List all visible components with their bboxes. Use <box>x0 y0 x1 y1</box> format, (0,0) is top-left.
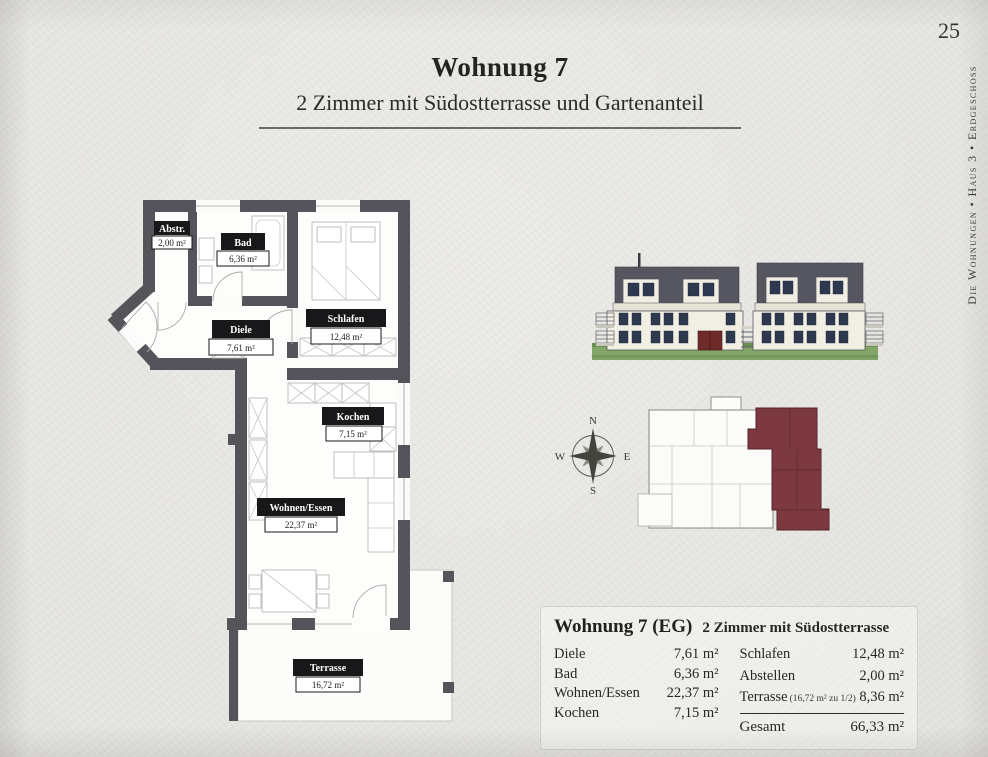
room-name: Bad <box>234 238 252 249</box>
neighbor-terrace <box>638 494 672 526</box>
room-label-kochen: Kochen 7,15 m² <box>322 407 384 441</box>
room-area: 7,15 m² <box>339 429 367 439</box>
building-overview <box>638 397 829 530</box>
row-label: Wohnen/Essen <box>554 684 640 704</box>
compass-rose: N S W E <box>555 415 631 497</box>
sidebar-caption: Die Wohnungen • Haus 3 • Erdgeschoss <box>963 49 981 321</box>
row-value: 7,61 m² <box>674 645 719 665</box>
room-area: 12,48 m² <box>330 332 363 342</box>
terrace-post <box>443 571 454 582</box>
row-label: Schlafen <box>740 645 793 667</box>
summary-row: Diele 7,61 m² <box>554 645 719 665</box>
summary-header: Wohnung 7 (EG) 2 Zimmer mit Südostterras… <box>554 616 904 638</box>
page-subtitle: 2 Zimmer mit Südostterrasse und Gartenan… <box>250 90 750 116</box>
row-label: Abstellen <box>740 667 798 689</box>
dormer <box>766 277 798 303</box>
row-label: Terrasse(16,72 m² zu 1/2) <box>740 688 856 710</box>
summary-row: Wohnen/Essen 22,37 m² <box>554 684 719 704</box>
dormer <box>683 279 719 305</box>
total-divider <box>740 713 905 714</box>
page-number: 25 <box>938 18 960 44</box>
summary-row: Schlafen 12,48 m² <box>740 645 905 667</box>
room-name: Diele <box>230 325 252 336</box>
terrace-side-wall <box>229 630 238 721</box>
dormer <box>623 279 659 305</box>
room-area: 2,00 m² <box>158 238 186 248</box>
room-name: Wohnen/Essen <box>270 503 333 514</box>
room-area: 22,37 m² <box>285 520 318 530</box>
row-label: Kochen <box>554 704 599 724</box>
row-value: 12,48 m² <box>852 645 904 665</box>
compass-main-star <box>569 428 617 484</box>
room-area: 16,72 m² <box>312 680 345 690</box>
balcony <box>866 313 883 346</box>
compass-s: S <box>590 485 596 497</box>
room-label-terrasse: Terrasse 16,72 m² <box>293 659 363 692</box>
site-plan: N S W E <box>555 392 851 544</box>
room-label-bad: Bad 6,36 m² <box>217 233 269 266</box>
room-label-schlafen: Schlafen 12,48 m² <box>306 309 386 344</box>
brochure-page: 25 Die Wohnungen • Haus 3 • Erdgeschoss … <box>0 0 988 757</box>
summary-left-column: Diele 7,61 m² Bad 6,36 m² Wohnen/Essen 2… <box>554 645 719 737</box>
summary-row: Bad 6,36 m² <box>554 665 719 685</box>
room-name: Schlafen <box>328 314 365 325</box>
row-label: Bad <box>554 665 577 685</box>
room-label-wohnen: Wohnen/Essen 22,37 m² <box>257 498 345 532</box>
row-value: 2,00 m² <box>859 667 904 687</box>
summary-subtitle: 2 Zimmer mit Südostterrasse <box>702 620 889 637</box>
room-area: 6,36 m² <box>229 254 257 264</box>
entrance-doors <box>698 331 722 350</box>
dormer <box>816 277 848 303</box>
row-value: 8,36 m² <box>859 688 904 708</box>
row-label: Diele <box>554 645 585 665</box>
area-summary-panel: Wohnung 7 (EG) 2 Zimmer mit Südostterras… <box>540 606 918 750</box>
sidebar-caption-text: Die Wohnungen • Haus 3 • Erdgeschoss <box>965 65 980 304</box>
room-name: Abstr. <box>159 224 186 235</box>
stairwell <box>711 397 741 411</box>
room-label-abstr: Abstr. 2,00 m² <box>152 221 192 249</box>
summary-row: Abstellen 2,00 m² <box>740 667 905 689</box>
summary-row: Kochen 7,15 m² <box>554 704 719 724</box>
summary-total-row: Gesamt 66,33 m² <box>740 718 905 738</box>
room-name: Terrasse <box>310 663 347 674</box>
room-name: Kochen <box>337 412 370 423</box>
floor-plan: Abstr. 2,00 m² Bad 6,36 m² Diele 7,61 m²… <box>100 190 460 738</box>
summary-row: Terrasse(16,72 m² zu 1/2) 8,36 m² <box>740 688 905 710</box>
compass-n: N <box>589 415 597 427</box>
row-value: 22,37 m² <box>667 684 719 704</box>
summary-title: Wohnung 7 (EG) <box>554 616 692 638</box>
room-label-diele: Diele 7,61 m² <box>209 320 273 355</box>
title-block: Wohnung 7 2 Zimmer mit Südostterrasse un… <box>250 52 750 129</box>
antenna <box>638 253 641 268</box>
compass-w: W <box>555 451 566 463</box>
compass-e: E <box>624 451 631 463</box>
row-value: 7,15 m² <box>674 704 719 724</box>
room-area: 7,61 m² <box>227 343 255 353</box>
building-elevation <box>585 248 887 366</box>
right-building <box>753 263 883 350</box>
terrace-post <box>443 682 454 693</box>
title-divider <box>259 127 741 129</box>
total-label: Gesamt <box>740 718 786 738</box>
page-title: Wohnung 7 <box>250 52 750 83</box>
summary-right-column: Schlafen 12,48 m² Abstellen 2,00 m² Terr… <box>740 645 905 737</box>
row-note: (16,72 m² zu 1/2) <box>790 694 856 704</box>
row-value: 6,36 m² <box>674 665 719 685</box>
total-value: 66,33 m² <box>850 718 904 738</box>
left-building <box>596 253 743 350</box>
bed <box>312 222 380 300</box>
